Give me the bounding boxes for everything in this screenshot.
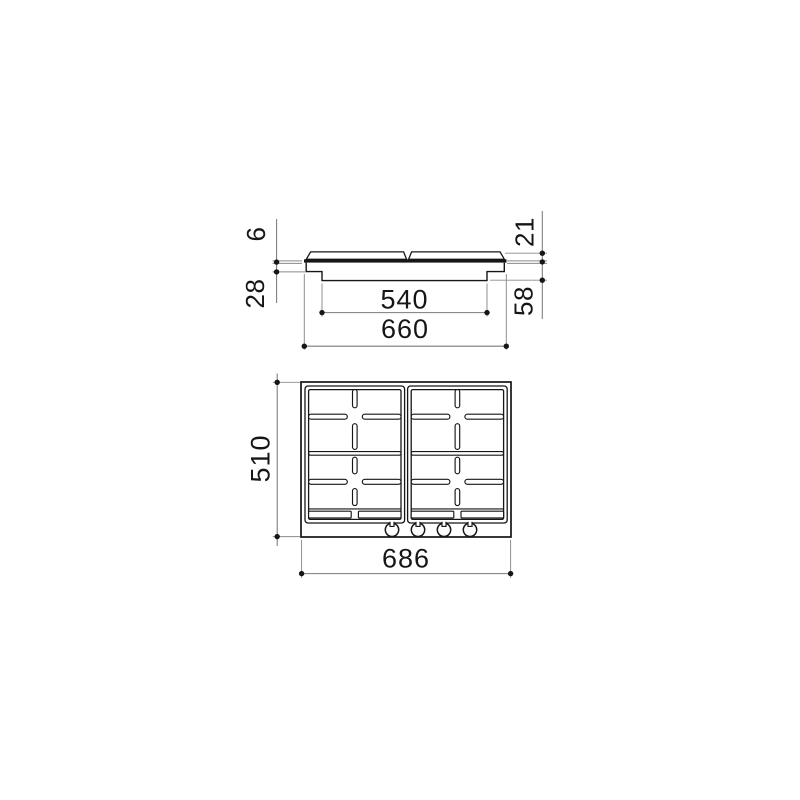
dim-dot <box>540 251 545 256</box>
dim-dot <box>299 571 304 576</box>
dim-dot <box>508 571 513 576</box>
dim-dot <box>540 278 545 283</box>
dim-dot <box>274 269 279 274</box>
front-view: 6 28 21 58 540 <box>240 211 547 350</box>
dim-dot <box>319 310 324 315</box>
body-tub-profile <box>306 263 504 281</box>
dim-dot <box>275 380 280 385</box>
top-plate-profile <box>304 259 507 262</box>
dimension-chain-left: 6 28 <box>240 219 306 308</box>
hob-dimension-drawing: 6 28 21 58 540 <box>0 0 800 800</box>
dim-label-plate-thickness: 6 <box>241 227 271 242</box>
dim-dot <box>504 344 509 349</box>
pan-support-profile-left <box>306 252 406 259</box>
dim-label-recess-width: 540 <box>380 285 428 315</box>
dimension-recess-width: 540 <box>319 284 489 317</box>
dim-dot <box>302 344 307 349</box>
dim-label-plate-width: 660 <box>381 314 429 344</box>
pan-support-profile-right <box>409 252 505 259</box>
dim-label-flange-depth: 28 <box>240 279 270 309</box>
top-view: 510 686 <box>246 374 514 578</box>
pan-support-grid-right <box>408 386 508 523</box>
dimension-overall-width: 686 <box>299 540 513 578</box>
dim-dot <box>275 534 280 539</box>
dimension-chain-right: 21 58 <box>490 211 547 319</box>
dim-label-grid-height: 21 <box>510 217 540 247</box>
dim-dot <box>540 259 545 264</box>
dim-dot <box>274 259 279 264</box>
dim-label-overall-depth: 510 <box>246 434 276 482</box>
dim-label-overall-width: 686 <box>382 544 430 574</box>
dim-label-body-depth: 58 <box>509 286 539 316</box>
pan-support-grid-left <box>305 386 405 523</box>
dim-dot <box>484 310 489 315</box>
dimension-overall-depth: 510 <box>246 374 301 547</box>
